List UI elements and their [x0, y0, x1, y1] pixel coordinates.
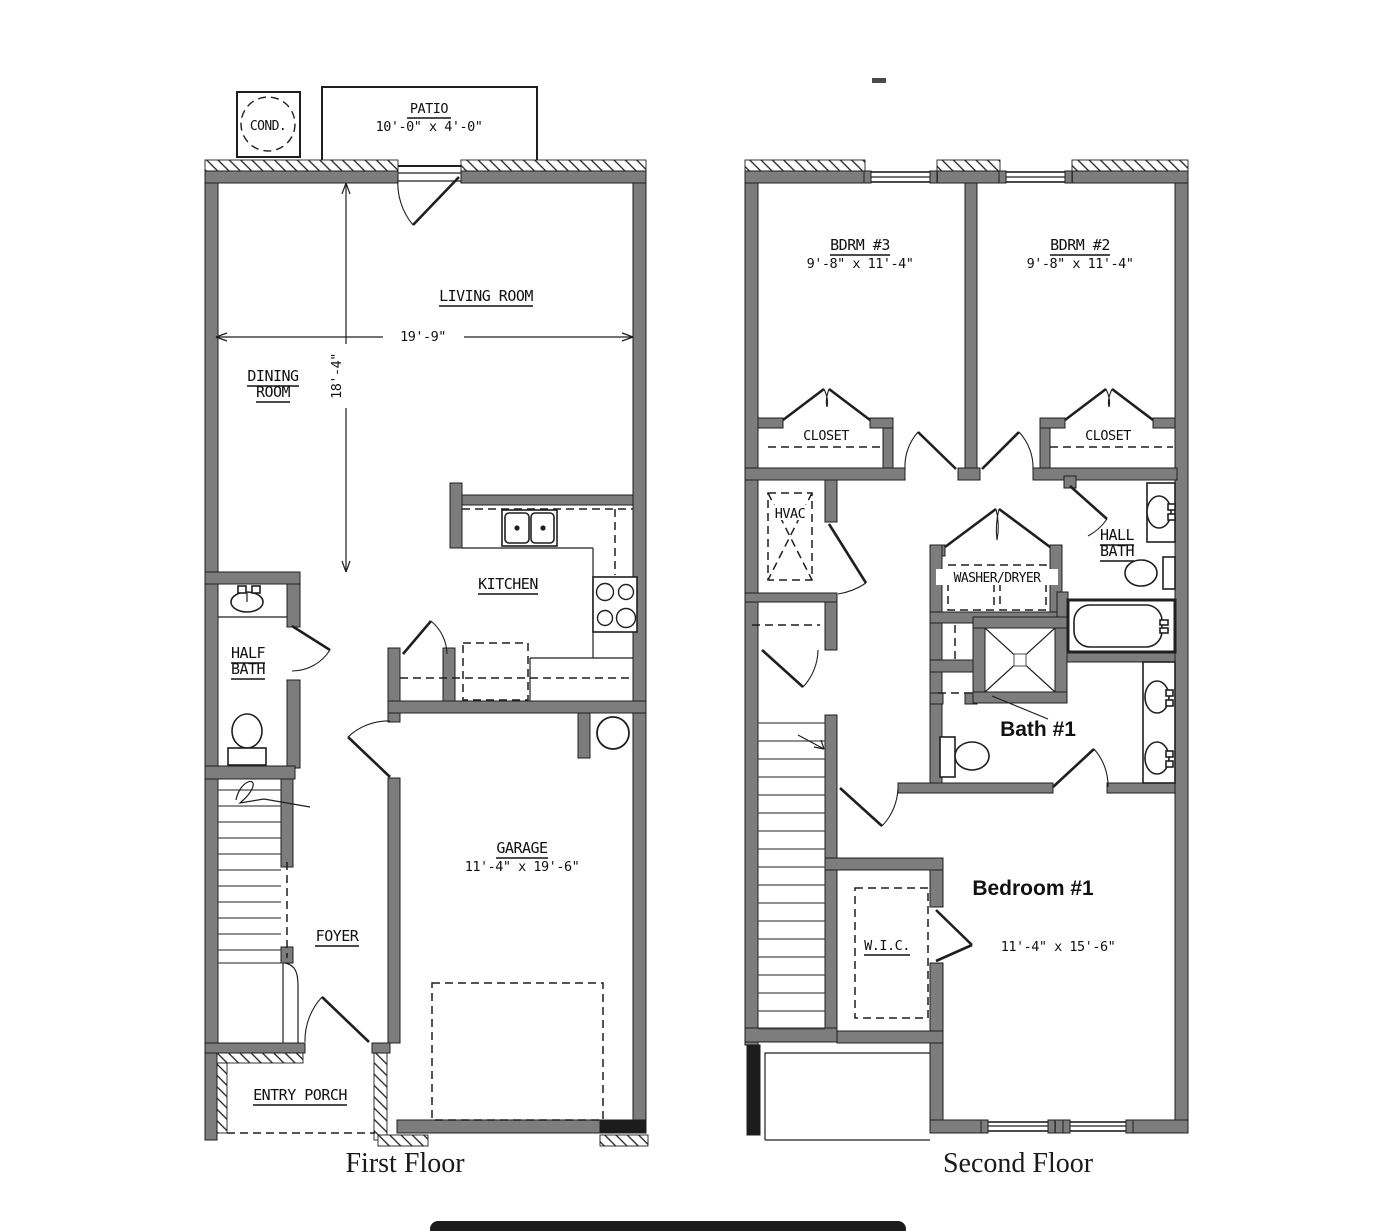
stairs-second-floor — [758, 723, 825, 1029]
print-artifact — [872, 78, 886, 83]
second-floor-plan: BDRM #3 9'-8" x 11'-4" BDRM #2 9'-8" x 1… — [745, 78, 1188, 1179]
linen-closet — [752, 625, 820, 687]
refrigerator — [463, 643, 528, 700]
patio-label: PATIO — [410, 101, 449, 117]
height-dimension: 18'-4" — [329, 353, 345, 399]
closet-right-label: CLOSET — [1085, 428, 1131, 444]
patio-door — [398, 173, 461, 225]
hall-bath-toilet — [1125, 560, 1157, 586]
bdrm2-label: BDRM #2 — [1050, 236, 1110, 254]
patio-dims: 10'-0" x 4'-0" — [376, 119, 483, 135]
bedroom1-hall-door — [840, 788, 898, 826]
washer-dryer-label: WASHER/DRYER — [954, 571, 1041, 586]
shower-drain — [1014, 654, 1026, 666]
hall-bath-sink — [1147, 496, 1171, 528]
bath1-sink-2 — [1145, 742, 1169, 774]
entry-porch-label: ENTRY PORCH — [253, 1086, 347, 1104]
hvac-label: HVAC — [775, 506, 806, 522]
closet-left-label: CLOSET — [803, 428, 849, 444]
bdrm2-dims: 9'-8" x 11'-4" — [1027, 256, 1134, 272]
half-bath-toilet — [232, 714, 262, 748]
half-bath-label-2: BATH — [231, 660, 266, 678]
bath1-label: Bath #1 — [1000, 718, 1076, 741]
exterior-hatching — [205, 160, 648, 1146]
bath1-toilet — [955, 742, 989, 770]
bdrm3-label: BDRM #3 — [830, 236, 890, 254]
cond-label: COND. — [250, 119, 286, 134]
garage-door-pad — [432, 983, 603, 1120]
bedroom1-dims: 11'-4" x 15'-6" — [1001, 939, 1115, 955]
hall-bath-label-2: BATH — [1100, 542, 1135, 560]
stairs-first-floor — [218, 781, 310, 1043]
bath1-sink-1 — [1145, 681, 1169, 713]
hall-bath-fixtures — [1068, 483, 1175, 652]
exterior-hatching-2 — [745, 160, 1188, 171]
dining-label-2: ROOM — [256, 383, 291, 401]
garage-dims: 11'-4" x 19'-6" — [465, 859, 579, 875]
bdrm3-dims: 9'-8" x 11'-4" — [807, 256, 914, 272]
foyer-doors — [305, 721, 390, 1042]
roof-outline — [765, 1053, 930, 1140]
bottom-scrollbar[interactable] — [430, 1221, 906, 1231]
walls — [205, 171, 646, 1140]
first-floor-plan: COND. PATIO 10'-0" x 4'-0" LIVING ROOM 1… — [205, 87, 648, 1179]
bedroom1-label: Bedroom #1 — [972, 877, 1094, 900]
kitchen-label: KITCHEN — [478, 575, 538, 593]
second-floor-caption: Second Floor — [943, 1148, 1094, 1179]
width-dimension: 19'-9" — [400, 329, 446, 345]
water-heater — [597, 717, 629, 749]
stair-direction-arrow-2 — [798, 735, 824, 749]
garage-label: GARAGE — [496, 839, 548, 857]
first-floor-caption: First Floor — [345, 1148, 465, 1179]
washer-dryer-closet — [936, 509, 1058, 610]
foyer-label: FOYER — [316, 927, 360, 945]
stair-direction-arrow — [236, 781, 310, 807]
floor-plan-page: COND. PATIO 10'-0" x 4'-0" LIVING ROOM 1… — [0, 0, 1397, 1231]
living-room-label: LIVING ROOM — [439, 287, 533, 305]
wic-label: W.I.C. — [864, 938, 910, 954]
floor-plan-canvas: COND. PATIO 10'-0" x 4'-0" LIVING ROOM 1… — [0, 0, 1397, 1231]
